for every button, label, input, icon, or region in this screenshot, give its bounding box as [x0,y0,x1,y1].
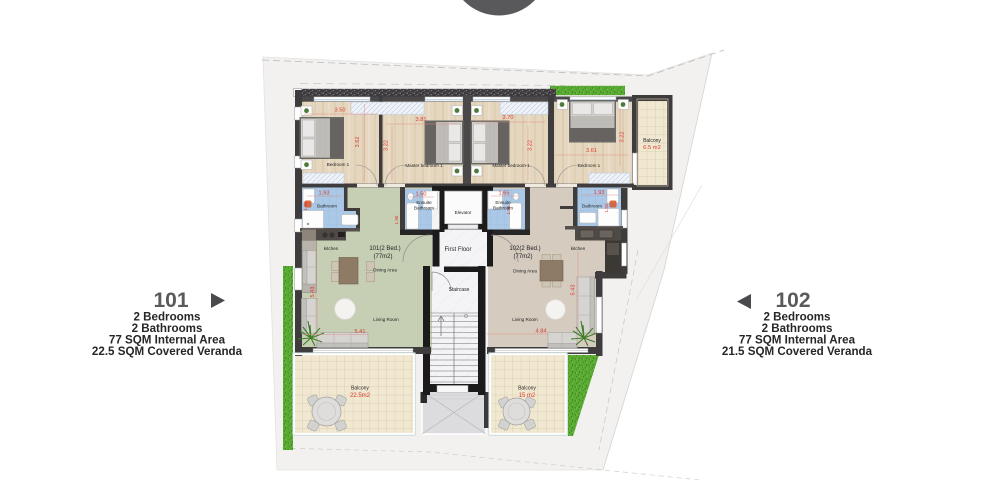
svg-text:1.50: 1.50 [416,192,427,198]
svg-text:Bathroom: Bathroom [493,206,513,211]
svg-text:3.70: 3.70 [503,115,514,121]
svg-text:Bathroom: Bathroom [317,204,337,209]
svg-text:Balcony: Balcony [518,386,536,392]
svg-text:3.22: 3.22 [384,140,390,151]
svg-text:First Floor: First Floor [445,247,472,253]
svg-text:101: 101 [153,289,188,312]
svg-text:Bedroom 1: Bedroom 1 [327,162,350,167]
svg-text:1.65: 1.65 [499,191,510,197]
svg-text:5.41: 5.41 [355,329,366,335]
svg-text:3.81: 3.81 [416,117,427,123]
svg-text:Ensuite: Ensuite [495,200,511,205]
svg-text:1.95: 1.95 [394,215,399,224]
svg-text:Balcony: Balcony [351,386,369,392]
svg-text:21.5 SQM Covered Veranda: 21.5 SQM Covered Veranda [722,345,873,358]
svg-text:(77m2): (77m2) [513,254,532,260]
svg-text:4.84: 4.84 [536,329,547,335]
svg-text:3.61: 3.61 [586,148,597,154]
svg-text:5.43: 5.43 [571,285,577,296]
svg-text:Dining Area: Dining Area [373,268,397,273]
svg-text:22.5 SQM Covered Veranda: 22.5 SQM Covered Veranda [92,345,243,358]
svg-text:5.43: 5.43 [310,287,316,298]
svg-text:3.22: 3.22 [528,140,534,151]
svg-text:Staircase: Staircase [449,287,470,293]
svg-text:kitchen: kitchen [571,246,586,251]
svg-text:Master bedroom 1: Master bedroom 1 [405,163,443,168]
svg-text:Master bedroom 1: Master bedroom 1 [492,163,530,168]
svg-text:Dining Area: Dining Area [513,269,537,274]
svg-text:1.80: 1.80 [604,203,609,212]
svg-text:101(2 Bed.): 101(2 Bed.) [369,246,400,252]
svg-text:102(2 Bed.): 102(2 Bed.) [509,246,540,252]
svg-text:Balcony: Balcony [643,138,661,144]
svg-text:1.93: 1.93 [594,190,605,196]
svg-text:(77m2): (77m2) [373,254,392,260]
svg-text:1.90: 1.90 [303,201,308,210]
svg-text:Bathroom: Bathroom [414,206,434,211]
svg-text:kitchen: kitchen [324,246,339,251]
svg-text:22.5m2: 22.5m2 [350,393,371,399]
svg-text:Living Room: Living Room [373,317,399,322]
svg-text:Bedroom 1: Bedroom 1 [578,163,601,168]
svg-text:1.93: 1.93 [319,191,330,197]
svg-text:3.62: 3.62 [355,137,361,148]
svg-text:15 m2: 15 m2 [519,393,536,399]
svg-text:Bathroom: Bathroom [582,204,602,209]
svg-text:6.5 m2: 6.5 m2 [643,145,661,151]
svg-text:102: 102 [775,289,810,312]
svg-text:Elevator: Elevator [455,210,472,215]
svg-text:Living Room: Living Room [512,317,538,322]
svg-text:3.50: 3.50 [335,108,346,114]
svg-text:Ensuite: Ensuite [416,200,432,205]
svg-text:3.22: 3.22 [620,132,626,143]
